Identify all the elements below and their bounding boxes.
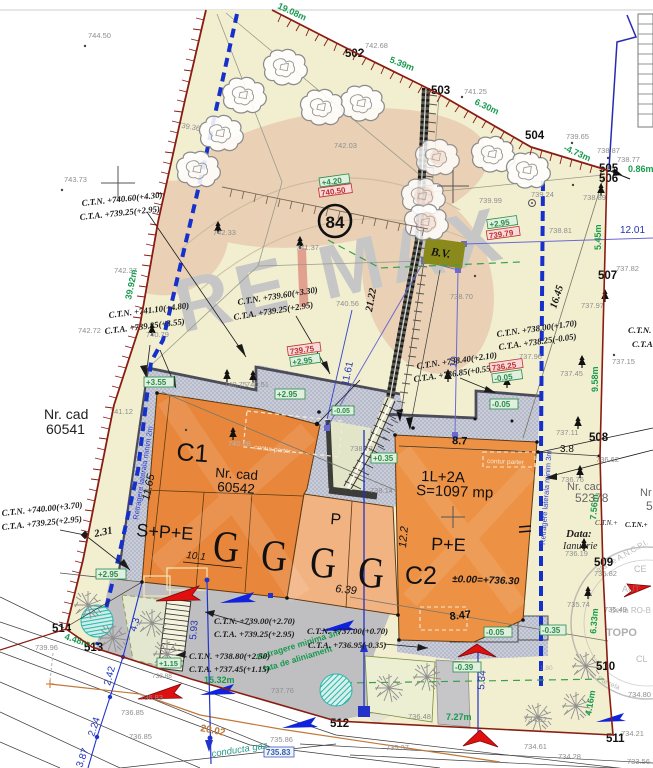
- svg-text:739.96: 739.96: [35, 643, 58, 652]
- svg-text:G: G: [308, 537, 338, 588]
- svg-text:738.81: 738.81: [549, 226, 572, 235]
- svg-text:735.37: 735.37: [386, 743, 409, 752]
- svg-text:738.87: 738.87: [597, 146, 620, 155]
- svg-text:5.45m: 5.45m: [593, 224, 603, 250]
- svg-text:C.T.N. +738.80(+2.50): C.T.N. +738.80(+2.50): [189, 651, 270, 661]
- svg-text:734.62: 734.62: [524, 715, 547, 724]
- svg-text:3.8: 3.8: [560, 444, 574, 455]
- svg-text:C.T.N. +737.00(+0.70): C.T.N. +737.00(+0.70): [307, 626, 388, 636]
- svg-text:8.7: 8.7: [452, 435, 468, 448]
- svg-text:CE: CE: [634, 564, 647, 574]
- svg-text:740.08: 740.08: [228, 439, 251, 448]
- svg-text:734.21: 734.21: [621, 729, 644, 738]
- svg-text:+1.15: +1.15: [159, 659, 178, 668]
- svg-text:734.28: 734.28: [558, 752, 581, 761]
- svg-text:736.83: 736.83: [140, 693, 163, 702]
- svg-text:5.34: 5.34: [476, 669, 489, 690]
- svg-text:-0.35: -0.35: [542, 626, 561, 635]
- svg-text:737.11: 737.11: [556, 428, 578, 437]
- svg-text:507: 507: [598, 270, 617, 282]
- svg-text:737.96: 737.96: [519, 352, 542, 361]
- svg-text:744.50: 744.50: [88, 31, 111, 40]
- svg-text:-0.05: -0.05: [492, 400, 511, 409]
- svg-text:735.86: 735.86: [270, 735, 293, 744]
- svg-text:737.82: 737.82: [616, 264, 639, 273]
- svg-text:G: G: [356, 547, 386, 598]
- svg-text:504: 504: [525, 130, 545, 142]
- svg-text:AUT: AUT: [622, 584, 641, 594]
- svg-text:741.25: 741.25: [464, 87, 487, 96]
- svg-text:741.37: 741.37: [296, 243, 319, 252]
- svg-text:742.72: 742.72: [78, 326, 101, 335]
- svg-text:735.49: 735.49: [604, 605, 627, 614]
- svg-text:-0.05: -0.05: [486, 628, 505, 637]
- svg-text:60541: 60541: [46, 421, 85, 437]
- svg-text:737.97: 737.97: [581, 301, 604, 310]
- svg-text:C.T.A. +737.45(+1.15): C.T.A. +737.45(+1.15): [189, 664, 270, 674]
- svg-text:738.88: 738.88: [152, 673, 172, 680]
- svg-text:734.61: 734.61: [524, 742, 547, 751]
- svg-text:-0.39: -0.39: [455, 663, 474, 672]
- svg-text:S=1097 mp: S=1097 mp: [416, 482, 494, 502]
- svg-text:C.T.A. +736.95(-0.35): C.T.A. +736.95(-0.35): [308, 640, 387, 650]
- svg-text:738.77: 738.77: [617, 155, 640, 164]
- svg-text:737.76: 737.76: [271, 686, 294, 695]
- svg-text:735.83: 735.83: [266, 748, 291, 757]
- svg-text:740.75: 740.75: [224, 380, 247, 389]
- svg-text:Nr. cad: Nr. cad: [44, 406, 88, 422]
- svg-text:Data:: Data:: [565, 528, 592, 540]
- svg-text:C.T.N.+: C.T.N.+: [625, 521, 648, 529]
- svg-text:742.68: 742.68: [365, 41, 388, 50]
- svg-text:508: 508: [589, 432, 609, 444]
- svg-text:60542: 60542: [217, 479, 256, 497]
- svg-text:12.01: 12.01: [620, 225, 645, 236]
- svg-text:742.03: 742.03: [334, 141, 357, 150]
- svg-text:C.T.N.: C.T.N.: [628, 325, 651, 335]
- svg-text:6.39: 6.39: [335, 583, 358, 597]
- svg-text:P+E: P+E: [431, 534, 466, 555]
- svg-text:740.79: 740.79: [146, 330, 169, 339]
- svg-text:736.85: 736.85: [121, 708, 144, 717]
- svg-text:S+P+E: S+P+E: [136, 520, 194, 544]
- svg-text:736.85: 736.85: [129, 732, 152, 741]
- svg-text:+2.95: +2.95: [277, 390, 298, 399]
- svg-text:C.T.N.+: C.T.N.+: [595, 519, 618, 527]
- svg-text:+2.95: +2.95: [98, 570, 119, 579]
- svg-text:734.80: 734.80: [628, 690, 651, 699]
- svg-text:TOPO: TOPO: [606, 627, 637, 639]
- svg-text:5: 5: [646, 499, 653, 513]
- svg-text:506: 506: [599, 173, 618, 185]
- svg-text:742.33: 742.33: [213, 228, 236, 237]
- svg-text:CL: CL: [636, 654, 648, 664]
- svg-text:C.T.A.: C.T.A.: [632, 339, 653, 349]
- svg-text:8.47: 8.47: [449, 609, 472, 623]
- svg-text:736.48: 736.48: [408, 712, 431, 721]
- svg-text:G: G: [211, 521, 241, 572]
- svg-text:12.2: 12.2: [397, 526, 411, 548]
- svg-text:10.1: 10.1: [186, 550, 207, 563]
- svg-text:5.93: 5.93: [188, 619, 201, 640]
- svg-text:Ianuarie: Ianuarie: [562, 541, 598, 552]
- svg-text:C.T.N. +739.00(+2.70): C.T.N. +739.00(+2.70): [214, 616, 295, 626]
- svg-text:743.73: 743.73: [64, 175, 87, 184]
- svg-text:52378: 52378: [575, 491, 609, 505]
- svg-text:Nr: Nr: [640, 487, 652, 499]
- svg-text:739.99: 739.99: [479, 196, 502, 205]
- svg-text:+0.35: +0.35: [373, 454, 394, 463]
- svg-text:1.80: 1.80: [540, 665, 553, 672]
- svg-text:738.72: 738.72: [350, 444, 373, 453]
- svg-text:738.14: 738.14: [370, 486, 393, 495]
- svg-text:740.56: 740.56: [336, 299, 359, 308]
- svg-text:+3.55: +3.55: [146, 378, 167, 387]
- svg-text:737.45: 737.45: [560, 369, 583, 378]
- svg-text:0.86m: 0.86m: [628, 164, 653, 174]
- svg-text:739.24: 739.24: [531, 190, 554, 199]
- svg-text:G: G: [259, 530, 289, 581]
- svg-text:84: 84: [326, 213, 345, 232]
- svg-text:738.70: 738.70: [450, 292, 473, 301]
- svg-text:735.74: 735.74: [567, 600, 590, 609]
- svg-text:735.82: 735.82: [594, 569, 617, 578]
- svg-text:contur parter: contur parter: [487, 458, 525, 466]
- svg-text:510: 510: [596, 661, 615, 673]
- svg-text:733.56: 733.56: [627, 757, 650, 766]
- svg-text:738.89: 738.89: [583, 193, 606, 202]
- svg-text:739.65: 739.65: [566, 132, 589, 141]
- svg-text:-0.05: -0.05: [334, 408, 350, 415]
- svg-text:9.58m: 9.58m: [590, 366, 600, 392]
- svg-text:C.T.A. +739.25(+2.95): C.T.A. +739.25(+2.95): [214, 629, 295, 639]
- svg-text:737.15: 737.15: [612, 357, 635, 366]
- svg-text:C2: C2: [405, 562, 437, 590]
- svg-text:7.27m: 7.27m: [446, 712, 472, 722]
- svg-text:C1: C1: [176, 438, 210, 468]
- svg-text:740.51: 740.51: [246, 380, 269, 389]
- svg-text:P: P: [330, 511, 342, 529]
